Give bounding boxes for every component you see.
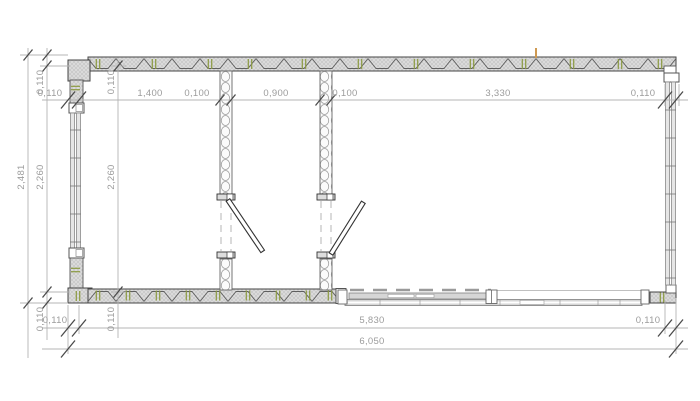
top-wall <box>68 48 676 81</box>
door-end-cap <box>641 290 649 304</box>
window-frame <box>664 73 679 82</box>
door-leaf-open <box>329 201 365 255</box>
floor-plan-canvas: 0,110 1,400 0,100 0,900 0,100 3,330 0,11… <box>0 0 700 401</box>
dim-label-top-3: 0,900 <box>263 88 288 99</box>
glazing-line <box>666 82 670 285</box>
dim-label-top-5: 3,330 <box>485 88 510 99</box>
dim-label-bottom-1: 5,830 <box>359 315 384 326</box>
dim-label-bottom-2: 0,110 <box>636 315 661 326</box>
dim-label-left-inner-0: 0,110 <box>106 70 117 95</box>
dim-label-left-inner-1: 2,260 <box>106 164 117 189</box>
dim-label-left-outer-2: 0,110 <box>35 307 46 332</box>
dim-label-total-width: 6,050 <box>359 336 384 347</box>
bottom-right-corner <box>650 285 676 303</box>
dim-label-left-outer-1: 2,260 <box>35 164 46 189</box>
glazing-line <box>672 82 676 285</box>
dim-label-top-1: 1,400 <box>137 88 162 99</box>
glazing-line <box>71 113 75 248</box>
drawing-area: 0,110 1,400 0,100 0,900 0,100 3,330 0,11… <box>0 0 700 401</box>
dim-label-bottom-0: 0,110 <box>43 315 68 326</box>
glazing-line <box>77 113 81 248</box>
door-end-cap <box>338 290 347 304</box>
interior-wall-1 <box>217 71 264 290</box>
dim-label-left-inner-2: 0,110 <box>106 307 117 332</box>
dim-label-total-height: 2,481 <box>16 164 27 189</box>
sliding-glass-door <box>338 290 649 306</box>
dim-label-top-6: 0,110 <box>631 88 656 99</box>
interior-wall-2 <box>317 71 365 290</box>
dim-label-top-4: 0,100 <box>332 88 357 99</box>
door-leaf-open <box>226 199 264 253</box>
dim-label-left-outer-0: 0,110 <box>35 70 46 95</box>
bottom-wall <box>88 289 346 304</box>
dim-label-top-2: 0,100 <box>184 88 209 99</box>
left-wall-window <box>68 80 92 303</box>
